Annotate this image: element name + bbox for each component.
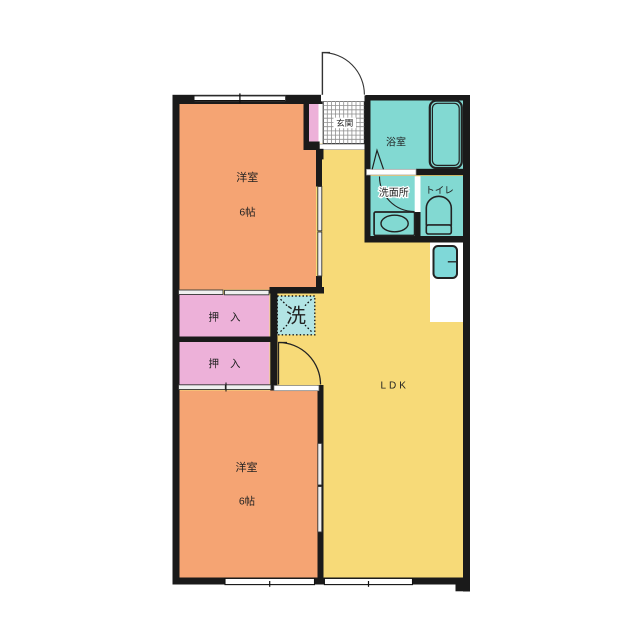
svg-text:洗: 洗	[286, 305, 306, 328]
svg-text:浴室: 浴室	[386, 136, 406, 149]
svg-text:6帖: 6帖	[239, 205, 256, 218]
svg-text:玄関: 玄関	[336, 118, 353, 128]
svg-text:LDK: LDK	[380, 380, 408, 391]
svg-text:トイレ: トイレ	[425, 185, 454, 196]
svg-text:洋室: 洋室	[236, 460, 258, 474]
svg-text:6帖: 6帖	[239, 494, 256, 507]
svg-text:洋室: 洋室	[236, 170, 258, 184]
svg-text:押入: 押入	[209, 310, 252, 323]
svg-text:押入: 押入	[209, 357, 252, 370]
svg-text:洗面所: 洗面所	[379, 187, 409, 199]
